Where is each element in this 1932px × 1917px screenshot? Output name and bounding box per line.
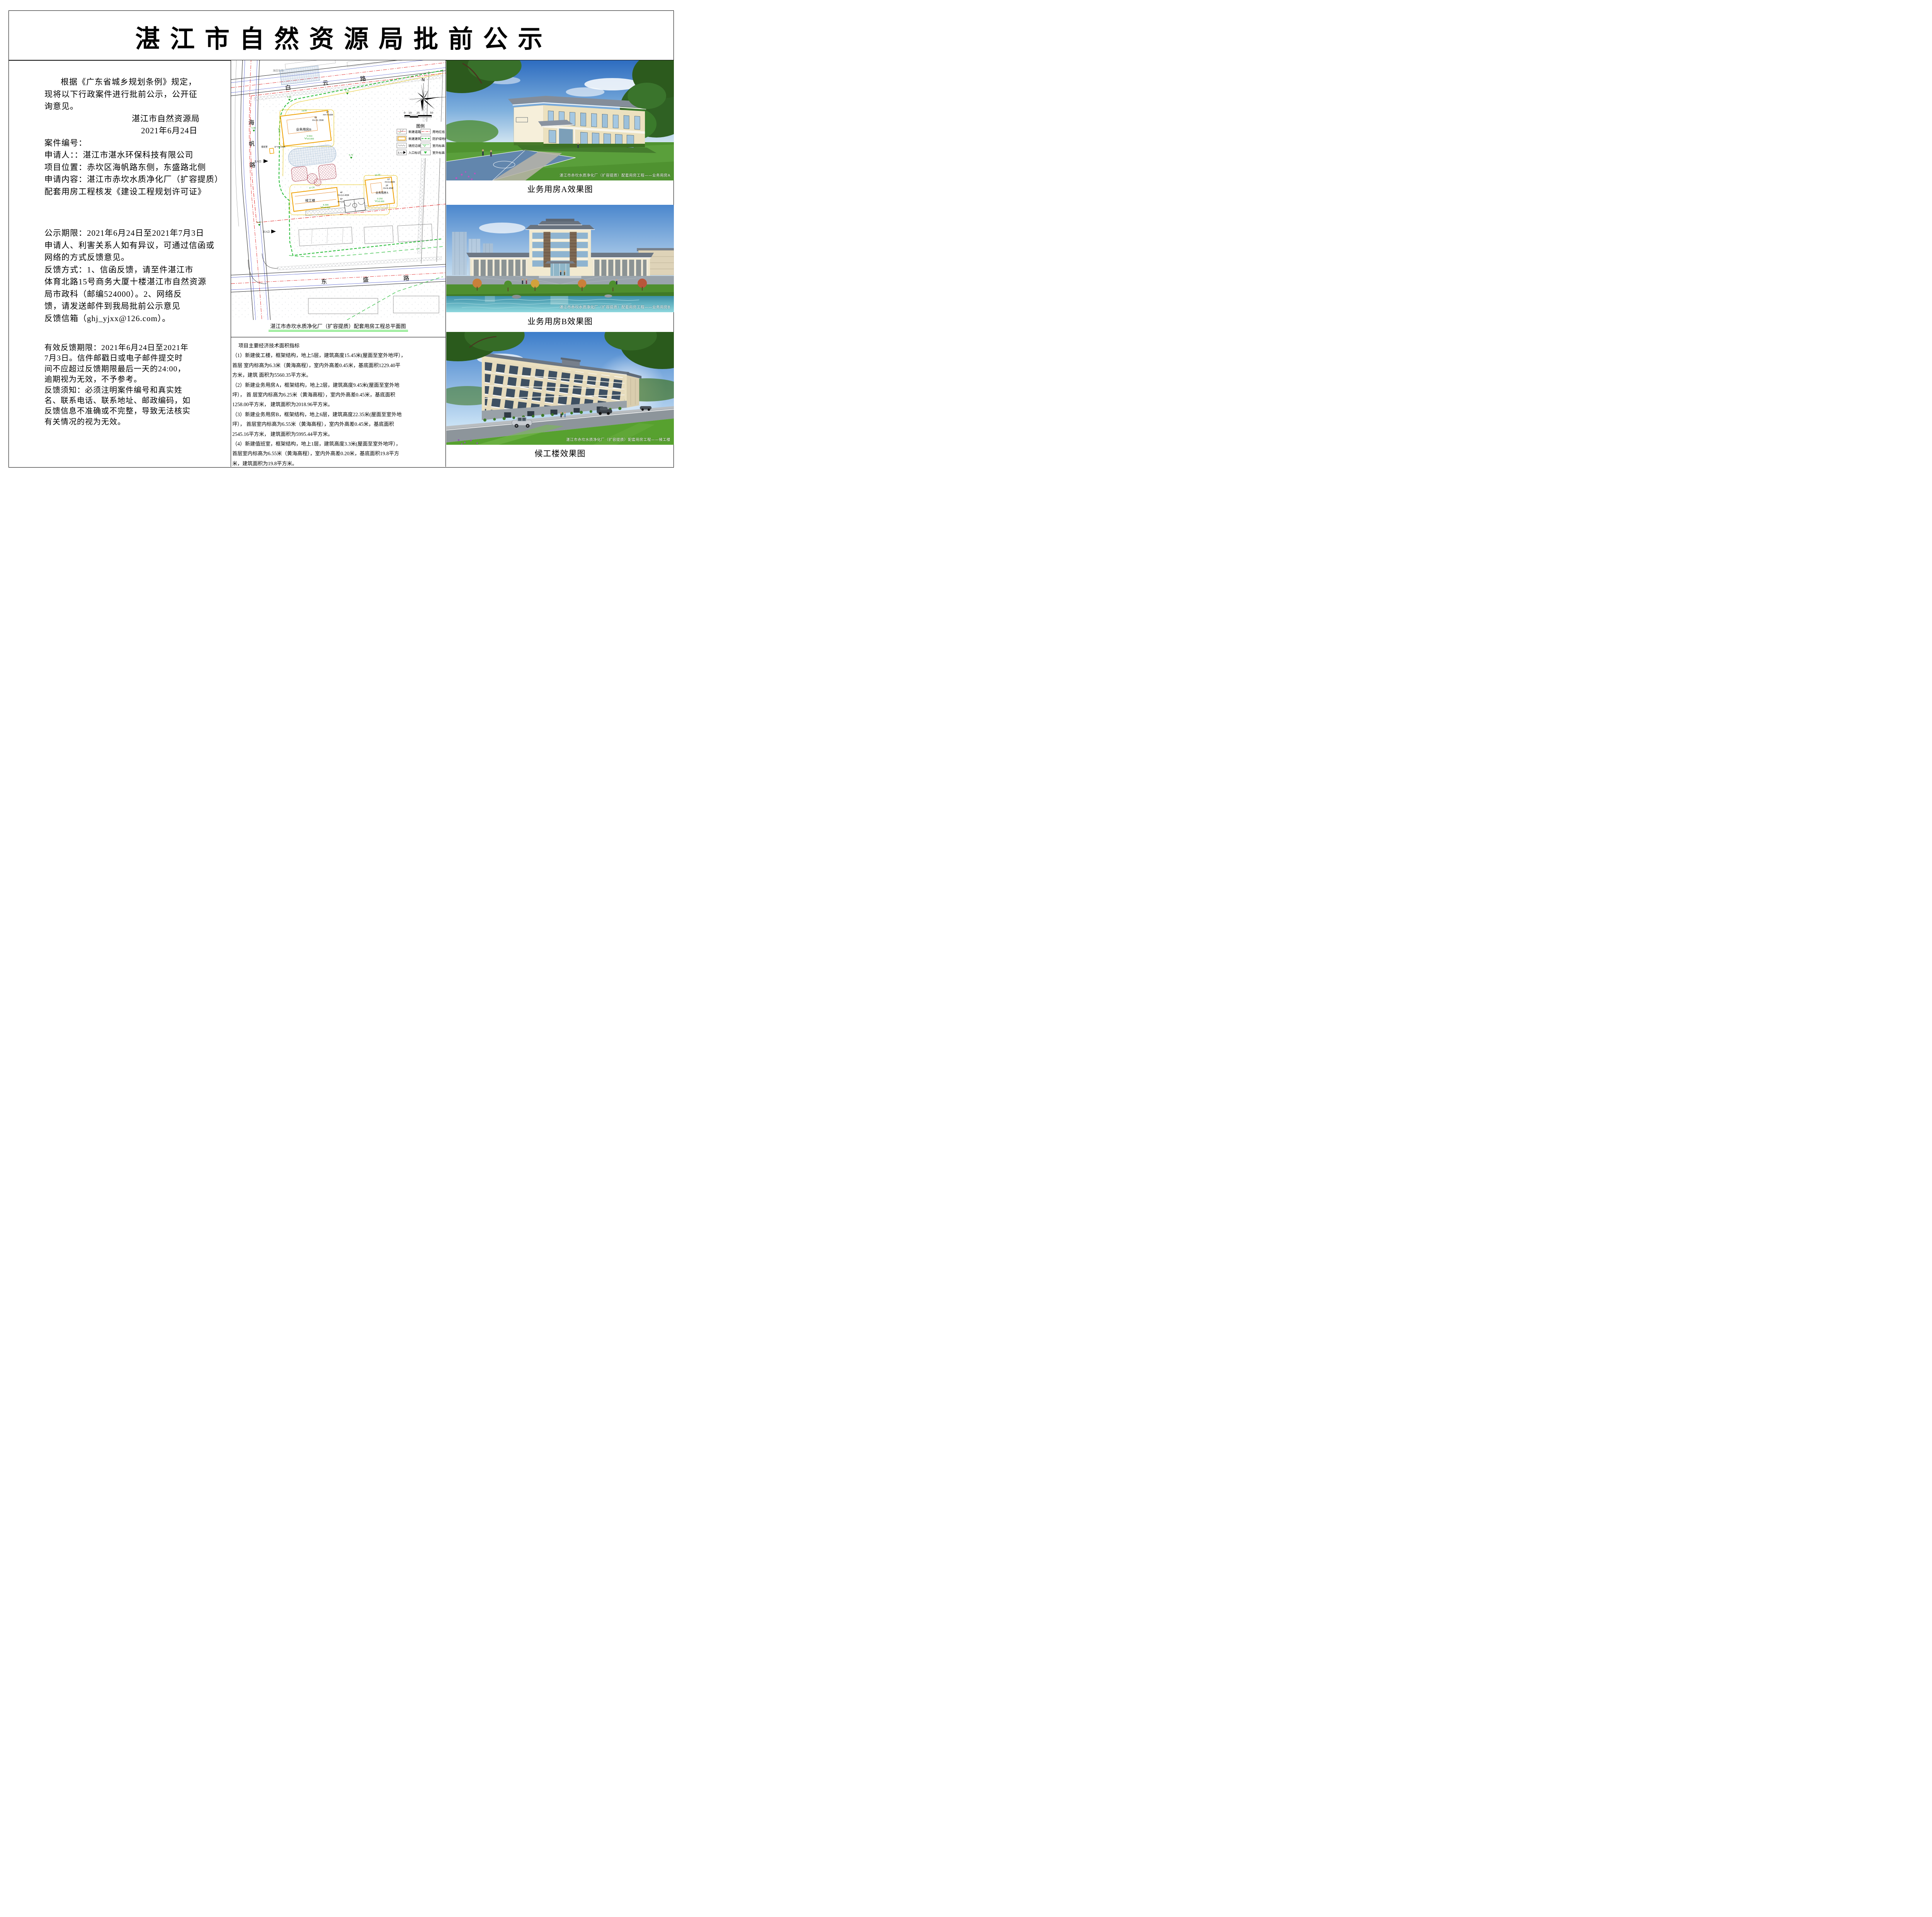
duty-room-label: 值班室 [261, 145, 268, 148]
watermark-c: 湛江市赤坎水质净化厂（扩容提质）配套用房工程——候工楼 [566, 437, 670, 442]
map-annotation: H=7.55M [323, 114, 333, 116]
caption-building-b: 业务用房B效果图 [446, 315, 674, 327]
svg-text:5.75: 5.75 [345, 90, 349, 92]
tech-line: 米，建筑面积为19.8平方米。 [232, 459, 445, 468]
map-annotation: H=9.45M [383, 187, 393, 190]
watermark-a: 湛江市赤坎水质净化厂（扩容提质）配套用房工程——业务用房A [560, 172, 670, 178]
map-annotation: H=12.45M [338, 194, 349, 197]
tech-line: （3）新建业务用房B，框架结构，地上6层，建筑高度22.35米(屋面至室外地 [232, 410, 445, 419]
tech-line: 坪）， 首层室内标高为6.55米（黄海高程），室内外高差0.45米，基底面积 [232, 419, 445, 429]
map-annotation: 2F [386, 185, 388, 187]
caption-hougonglou: 候工楼效果图 [446, 447, 674, 459]
map-elevation: 0.250 [377, 198, 383, 200]
building-hou-label: 候工楼 [305, 199, 315, 202]
tech-line: （2）新建业务用房A，框架结构，地上2层，建筑高度9.45米(屋面至室外地 [232, 380, 445, 390]
notice-paragraph-1: 根据《广东省城乡规划条例》规定， 现将以下行政案件进行批前公示，公开征 询意见。… [44, 76, 229, 198]
text-line: 间不应超过反馈期限最后一天的24:00， [44, 364, 229, 374]
map-annotation: 6F [315, 117, 317, 119]
notice-date: 2021年6月24日 [44, 125, 229, 137]
applicant-line: 申请人：：湛江市湛水环保科技有限公司 [44, 149, 229, 162]
text-line: 7月3日。信件邮戳日或电子邮件提交时 [44, 353, 229, 364]
svg-text:5.88: 5.88 [252, 127, 256, 129]
svg-text:50: 50 [430, 111, 433, 114]
text-line: 局市政科（邮编524000）。2、网络反 [44, 288, 229, 301]
tech-line: 首层室内标高为6.55米（黄海高程），室内外高差0.20米，基底面积19.8平方 [232, 449, 445, 458]
tech-line: （1）新建侯工楼，框架结构，地上5层，建筑高度15.45米(屋面至室外地坪）， [232, 350, 445, 360]
watermark-b: 湛江市赤坎水质净化厂（扩容提质）配套用房工程——业务用房B [560, 304, 670, 310]
case-number-label: 案件编号： [44, 137, 229, 150]
svg-text:新建建筑: 新建建筑 [408, 137, 421, 141]
svg-text:帆: 帆 [249, 140, 255, 147]
text-line: 名、联系电话、联系地址、邮政编码，如 [44, 396, 229, 406]
svg-text:0: 0 [404, 111, 405, 114]
notice-paragraph-2: 公示期限：2021年6月24日至2021年7月3日 申请人、利害关系人如有异议，… [44, 227, 229, 325]
plan-text-separator-line [231, 337, 446, 337]
site-plan-caption: 湛江市赤坎水质净化厂（扩容提质）配套用房工程总平面图 [231, 322, 446, 330]
rendering-c-image [446, 332, 674, 445]
tech-line: 2545.16平方米， 建筑面积为5995.44平方米。 [232, 429, 445, 439]
svg-text:用地红线: 用地红线 [432, 130, 445, 134]
svg-text:路: 路 [403, 275, 409, 282]
map-annotation: 1F H=3.6M [274, 146, 285, 148]
map-building-a: 业务用房A 1F H=4.95M 2F H=9.45M 0.250 ±0.000 [365, 177, 395, 206]
svg-text:路: 路 [250, 162, 255, 168]
map-annotation: H=22.35M [312, 119, 323, 122]
svg-text:东: 东 [321, 278, 327, 286]
map-elevation: 6.300 [323, 204, 328, 206]
text-line: 有关情况的视为无效。 [44, 417, 229, 427]
map-annotation: 4F [340, 192, 343, 194]
basketball-court [344, 198, 365, 213]
tech-line: （4）新建值班室，框架结构，地上1层，建筑高度3.3米(屋面至室外地坪）， [232, 439, 445, 449]
building-b-label: 业务用房B [296, 128, 311, 131]
map-building-b: 业务用房B 6F H=22.35M 1F H=7.55M 5.553 ±0.00… [281, 111, 333, 146]
svg-text:主入口: 主入口 [398, 151, 403, 154]
svg-text:盛: 盛 [363, 276, 369, 284]
plan-legend: 图例 新建道路 新建建筑 填挖边坡 主入口 [395, 122, 446, 158]
rendering-building-b: 湛江市赤坎水质净化厂（扩容提质）配套用房工程——业务用房B [446, 205, 674, 312]
svg-text:海: 海 [248, 119, 254, 126]
map-elevation: ±0.000 [323, 207, 330, 209]
caption-building-a: 业务用房A效果图 [446, 183, 674, 195]
notice-page: 湛江市自然资源局批前公示 根据《广东省城乡规划条例》规定， 现将以下行政案件进行… [0, 0, 678, 479]
site-plan-drawing: 海田车场 [231, 60, 446, 320]
text-line: 询意见。 [44, 100, 229, 113]
svg-text:室外标高: 室外标高 [432, 151, 445, 155]
valid-period-line: 有效反馈期限：2021年6月24日至2021年 [44, 343, 229, 353]
map-elevation: ±0.000 [377, 201, 384, 203]
text-line: 现将以下行政案件进行批前公示，公开征 [44, 88, 229, 101]
text-line: 根据《广东省城乡规划条例》规定， [44, 76, 229, 88]
tech-heading: 项目主要经济技术面积指标 [232, 341, 445, 350]
svg-text:入口标识: 入口标识 [408, 151, 421, 155]
svg-text:10: 10 [408, 111, 412, 114]
svg-text:5.73: 5.73 [349, 154, 353, 156]
map-elevation: ±0.000 [307, 138, 314, 140]
notice-text-column: 根据《广东省城乡规划条例》规定， 现将以下行政案件进行批前公示，公开征 询意见。… [44, 76, 229, 427]
text-line: 逾期视为无效，不予参考。 [44, 374, 229, 385]
rendering-building-a: 湛江市赤坎水质净化厂（扩容提质）配套用房工程——业务用房A [446, 60, 674, 180]
text-line: 网络的方式反馈意见。 [44, 252, 229, 264]
legend-title: 图例 [416, 123, 425, 129]
map-annotation: 1F [387, 179, 390, 181]
notice-paragraph-3: 有效反馈期限：2021年6月24日至2021年 7月3日。信件邮戳日或电子邮件提… [44, 343, 229, 427]
tech-line: 1258.00平方米， 建筑面积为2018.96平方米。 [232, 400, 445, 409]
building-a-label: 业务用房A [376, 191, 388, 194]
location-line: 项目位置：赤坎区海帆路东侧，东盛路北侧 [44, 162, 229, 174]
map-annotation: 1F [326, 111, 329, 114]
svg-text:25: 25 [417, 111, 420, 114]
svg-text:新建道路: 新建道路 [408, 130, 421, 134]
svg-text:白: 白 [285, 84, 291, 92]
map-elevation: 5.553 [307, 135, 312, 138]
rendering-b-image [446, 205, 674, 312]
page-title: 湛江市自然资源局批前公示 [0, 19, 678, 55]
tech-line: 坪）， 首 层室内标高为6.25米（黄海高程），室内外高差0.45米，基底面积 [232, 390, 445, 400]
svg-text:填挖边坡: 填挖边坡 [408, 144, 421, 148]
notice-requirement-line: 反馈须知：必须注明案件编号和真实姓 [44, 385, 229, 396]
technical-indicators: 项目主要经济技术面积指标 （1）新建侯工楼，框架结构，地上5层，建筑高度15.4… [232, 341, 445, 468]
rendering-hougonglou: 湛江市赤坎水质净化厂（扩容提质）配套用房工程——候工楼 [446, 332, 674, 445]
tech-line: 方米，建筑 面积为5560.35平方米。 [232, 370, 445, 380]
svg-text:5.80: 5.80 [257, 221, 261, 224]
svg-text:路: 路 [360, 75, 366, 83]
content-line: 申请内容：湛江市赤坎水质净化厂（扩容提质） [44, 173, 229, 186]
text-line: 申请人、利害关系人如有异议，可通过信函或 [44, 240, 229, 252]
svg-text:室内标高: 室内标高 [432, 144, 445, 148]
feedback-method-line: 反馈方式：1、信函反馈，请至件湛江市 [44, 264, 229, 276]
map-annotation: 5F [340, 198, 343, 201]
text-line: 体育北路15号商务大厦十楼湛江市自然资源 [44, 276, 229, 288]
agency-name: 湛江市自然资源局 [44, 113, 229, 125]
column-divider-right [446, 60, 446, 467]
svg-text:次入口: 次入口 [263, 230, 270, 233]
text-line: 馈，请发送邮件到我局批前公示意见 [44, 300, 229, 313]
period-line: 公示期限：2021年6月24日至2021年7月3日 [44, 227, 229, 240]
svg-text:防护绿地线: 防护绿地线 [432, 137, 446, 141]
tech-line: 首层 室内标高为6.3米（黄海高程），室内外高差0.45米，基底面积1229.4… [232, 361, 445, 370]
rendering-a-image [446, 60, 674, 180]
svg-text:云: 云 [322, 79, 329, 87]
content-line: 配套用房工程核发《建设工程规划许可证》 [44, 186, 229, 198]
text-line: 反馈信息不准确或不完整，导致无法核实 [44, 406, 229, 417]
svg-text:5.95: 5.95 [287, 96, 291, 99]
svg-text:N: N [422, 77, 425, 82]
map-annotation: H=4.95M [385, 181, 395, 184]
feedback-email-line: 反馈信箱（ghj_yjxx@126.com）。 [44, 313, 229, 325]
